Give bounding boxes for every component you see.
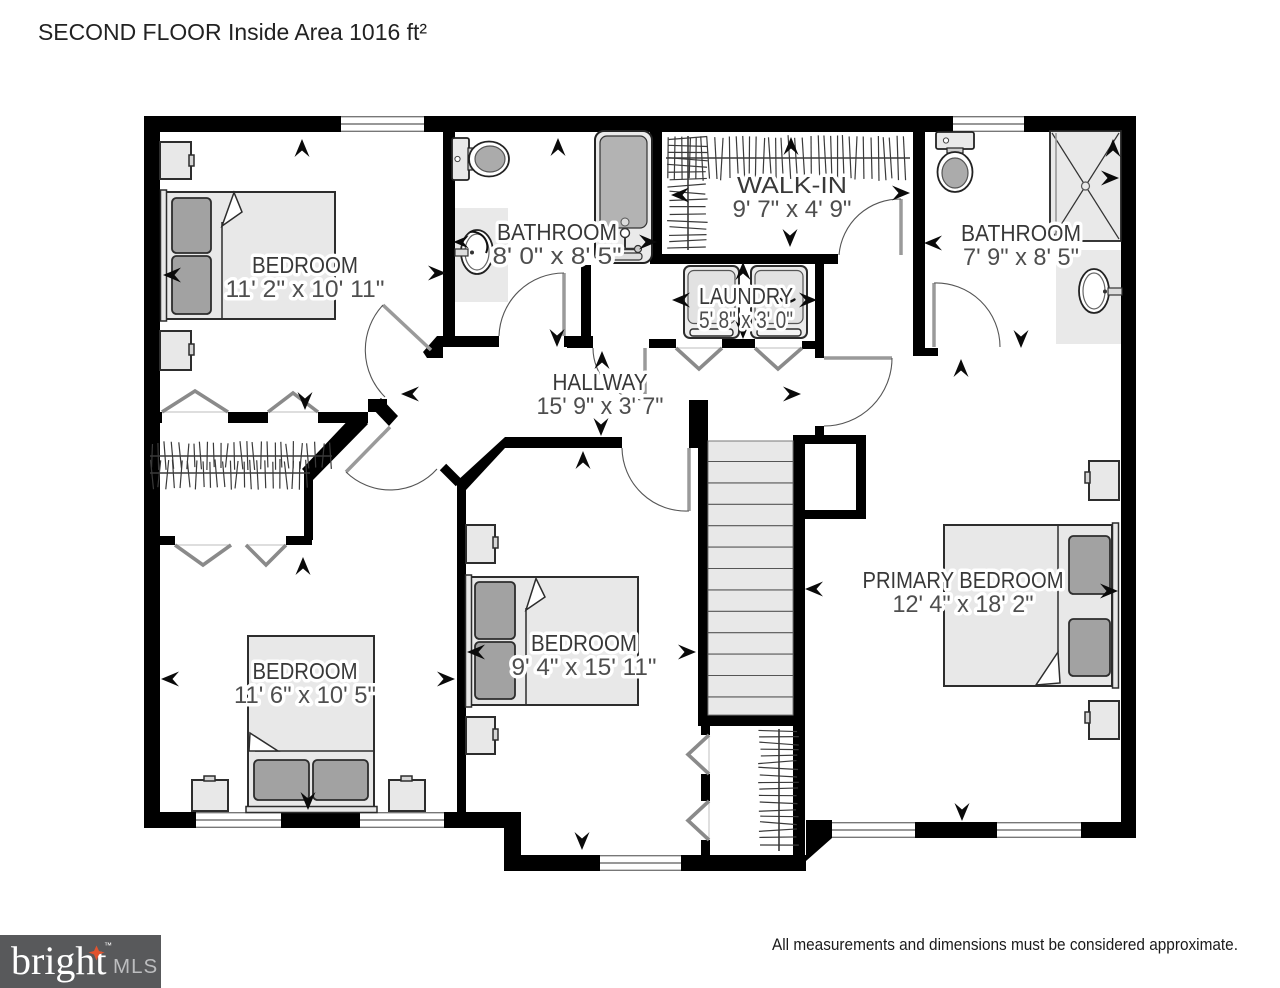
svg-text:BATHROOM: BATHROOM — [961, 220, 1081, 246]
svg-text:SECOND FLOOR Inside Area 1016: SECOND FLOOR Inside Area 1016 ft² — [38, 19, 427, 45]
svg-text:™: ™ — [104, 941, 112, 950]
svg-text:WALK-IN: WALK-IN — [737, 172, 847, 198]
svg-text:9' 7" x 4' 9": 9' 7" x 4' 9" — [733, 196, 852, 223]
svg-text:11' 6" x 10' 5": 11' 6" x 10' 5" — [234, 682, 376, 709]
svg-text:PRIMARY BEDROOM: PRIMARY BEDROOM — [863, 567, 1064, 593]
svg-text:All measurements and dimension: All measurements and dimensions must be … — [772, 936, 1238, 954]
svg-text:9' 4" x 15' 11": 9' 4" x 15' 11" — [512, 654, 657, 681]
svg-text:7' 9" x 8' 5": 7' 9" x 8' 5" — [963, 244, 1079, 271]
svg-text:HALLWAY: HALLWAY — [553, 369, 648, 395]
svg-text:12' 4" x 18' 2": 12' 4" x 18' 2" — [893, 591, 1034, 618]
svg-text:BEDROOM: BEDROOM — [252, 252, 358, 278]
svg-text:BEDROOM: BEDROOM — [531, 630, 637, 656]
svg-text:LAUNDRY: LAUNDRY — [699, 283, 793, 309]
svg-text:11' 2" x 10' 11": 11' 2" x 10' 11" — [226, 276, 385, 303]
svg-text:5' 8" x 3' 0": 5' 8" x 3' 0" — [699, 307, 793, 334]
svg-text:8' 0" x 8' 5": 8' 0" x 8' 5" — [493, 243, 622, 270]
svg-text:BATHROOM: BATHROOM — [497, 219, 617, 245]
svg-text:BEDROOM: BEDROOM — [253, 658, 358, 684]
svg-text:15' 9" x 3' 7": 15' 9" x 3' 7" — [537, 393, 664, 420]
svg-text:bright: bright — [11, 938, 107, 983]
svg-text:MLS: MLS — [113, 955, 158, 978]
